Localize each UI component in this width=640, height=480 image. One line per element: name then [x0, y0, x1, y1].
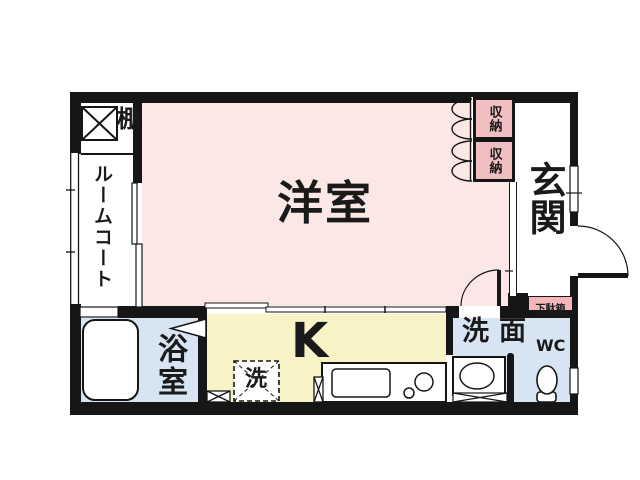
wall-right-lower: [570, 394, 578, 415]
wc-window: [570, 368, 578, 394]
western-room-label: 洋室: [277, 180, 373, 226]
wall-bottom: [70, 402, 578, 415]
storage-upper-box: 収納: [473, 97, 515, 140]
wall-bath-kitchen: [198, 318, 207, 402]
storage-lower-label: 収納: [488, 147, 501, 175]
closet-sliding-doors: [132, 183, 142, 307]
wall-left-upper: [70, 92, 81, 154]
storage-upper-label: 収納: [488, 105, 501, 133]
wall-divider-a: [118, 306, 207, 318]
washroom-label: 洗面: [462, 318, 536, 345]
wall-right-mid: [570, 276, 578, 368]
wall-wc-stub: [507, 353, 514, 403]
wall-entrance-corner: [508, 293, 528, 318]
shelf-label: 棚: [117, 107, 141, 131]
entrance-door: [578, 226, 628, 278]
shoe-cabinet-label: 下駄箱: [536, 304, 566, 315]
bathroom-label: 浴室: [154, 333, 184, 399]
wc-label: WC: [536, 338, 565, 354]
closet-window: [66, 153, 79, 304]
shoe-cabinet-box: 下駄箱: [528, 296, 573, 311]
kitchen-label: K: [291, 317, 328, 365]
floor-plan: 収納 収納 下駄箱: [0, 0, 640, 480]
bath-window: [80, 307, 118, 317]
partition-entrance: [509, 182, 517, 296]
wall-right-upper: [570, 92, 578, 166]
wall-kitchen-washroom: [446, 314, 453, 355]
closet-label: ルームコート: [92, 164, 111, 290]
storage-lower-box: 収納: [473, 139, 515, 182]
entrance-label: 玄関: [526, 161, 563, 235]
washer-label: 洗: [245, 369, 267, 391]
wall-left-lower: [70, 304, 81, 415]
wall-right-block: [570, 212, 578, 226]
